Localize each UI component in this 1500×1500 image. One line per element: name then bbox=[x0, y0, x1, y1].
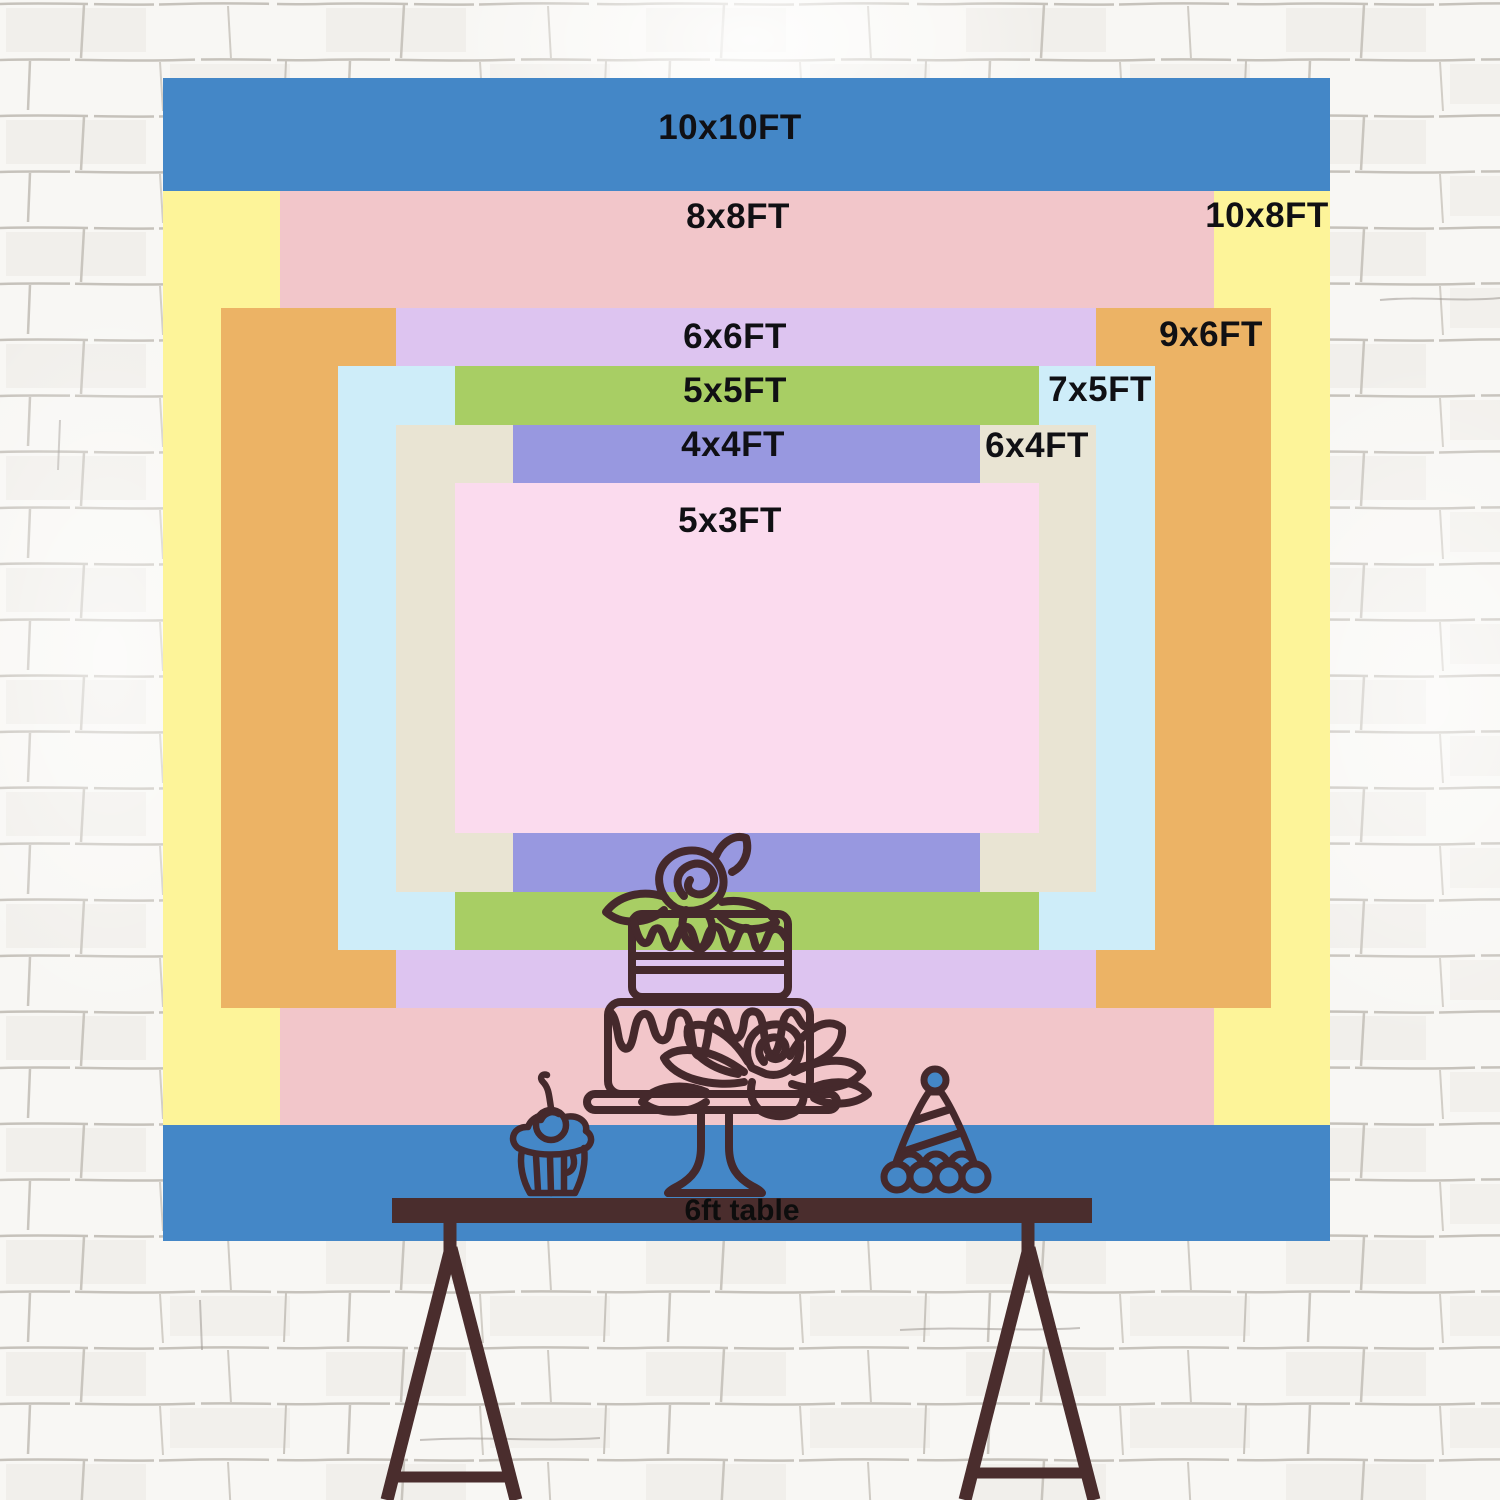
cake-stand bbox=[668, 1110, 762, 1193]
cup-pleat-1 bbox=[536, 1156, 538, 1191]
hat-topper bbox=[924, 1069, 946, 1091]
cupcake-illustration bbox=[513, 1075, 591, 1193]
cherry-stem bbox=[541, 1075, 551, 1108]
table-top: 6ft table bbox=[392, 1198, 1092, 1223]
hat-pom-trim bbox=[884, 1154, 988, 1190]
table-trestle-right bbox=[965, 1198, 1094, 1500]
flower-leaf-left bbox=[642, 1087, 706, 1112]
cup-pleat-2 bbox=[550, 1157, 551, 1193]
scene: 10x10FT 10x8FT 8x8FT 9x6FT 6x6FT 7x5FT 5… bbox=[0, 0, 1500, 1500]
rose-swirl bbox=[678, 864, 714, 896]
flower-swirl bbox=[759, 1037, 785, 1062]
table-label: 6ft table bbox=[684, 1198, 799, 1223]
table-trestle-left bbox=[387, 1198, 516, 1500]
decor-illustrations bbox=[0, 0, 1500, 1500]
party-hat-illustration bbox=[878, 1069, 988, 1190]
cake-illustration bbox=[587, 837, 868, 1193]
